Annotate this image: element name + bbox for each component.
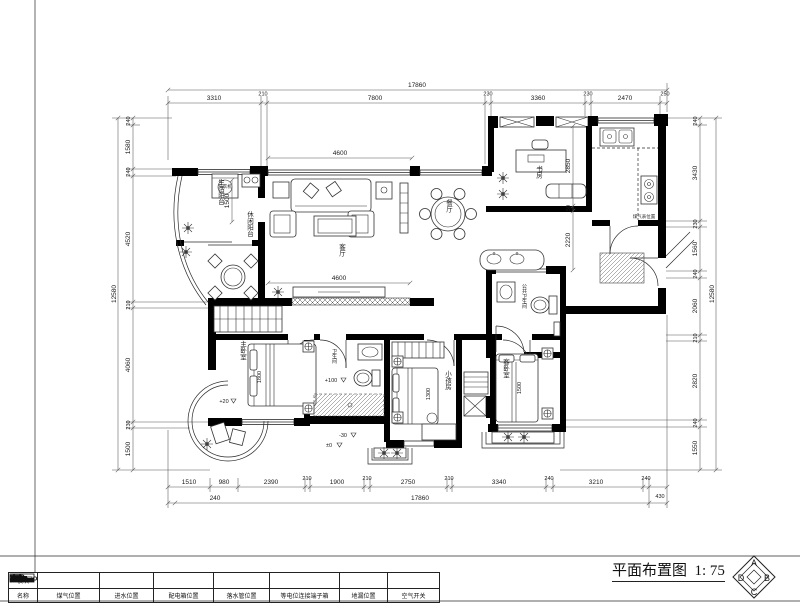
tv-feature-wall <box>292 298 410 305</box>
dim-top-seg: 210 <box>258 92 267 98</box>
wall-segment <box>384 340 390 442</box>
wall-segment <box>560 274 566 354</box>
dim-master-bed: 1800 <box>257 371 263 383</box>
wall-segment <box>546 266 566 274</box>
wall-segment <box>486 352 496 358</box>
divider-screen <box>400 183 408 233</box>
dim-top-seg: 250 <box>660 92 669 98</box>
dim-bot-seg: 2750 <box>401 479 416 486</box>
wall-segment <box>488 116 498 128</box>
dim-guest-bed: 1500 <box>517 382 523 394</box>
bedside-lamp <box>303 403 314 414</box>
label-public-bath: 公共卫生间 <box>521 284 527 310</box>
label-living: 客厅 <box>338 242 346 256</box>
shelf <box>554 322 560 336</box>
level-triangle-icon <box>351 433 356 437</box>
plant-icon <box>272 286 284 298</box>
wall-segment <box>434 440 462 448</box>
dim-right-seg: 2820 <box>692 373 699 388</box>
label-washer: 洗衣机 <box>218 183 232 190</box>
wall-segment <box>410 298 434 306</box>
label-leisure-balcony: 休闲阳台 <box>246 210 254 239</box>
dim-bot-seg: 210 <box>362 476 371 482</box>
wall-segment <box>314 334 320 340</box>
legend-header-name: 名称 <box>9 588 37 603</box>
stove <box>641 176 657 204</box>
dim-top-seg: 2470 <box>618 95 633 102</box>
planter-box <box>492 432 554 443</box>
wall-segment <box>294 418 310 426</box>
wall-segment <box>346 334 424 340</box>
dim-bot-right: 430 <box>655 494 664 500</box>
wall-segment <box>172 168 198 176</box>
dim-child-bed: 1300 <box>426 388 432 400</box>
compass-letter-top: A <box>751 558 757 568</box>
compass-letter-bottom: C <box>751 587 758 597</box>
window-box <box>500 117 534 127</box>
dim-left-seg: 1580 <box>125 139 132 154</box>
distribution-box-icon <box>153 573 213 588</box>
bedside-lamp <box>303 341 314 352</box>
kitchen-door <box>610 226 638 254</box>
dim-left-seg: 4060 <box>125 357 132 372</box>
tv-cabinet <box>293 287 385 297</box>
bedside-lamp <box>392 412 403 423</box>
dim-bot-seg: 240 <box>544 476 553 482</box>
wall-segment <box>410 166 420 176</box>
balcony-table-set <box>208 254 258 300</box>
dim-right-seg: 230 <box>693 219 699 228</box>
equipotential-terminal-icon <box>269 573 339 588</box>
wall-segment <box>386 440 404 448</box>
dim-top-overall: 17860 <box>408 82 426 89</box>
wall-segment <box>488 424 498 432</box>
downpipe-icon <box>213 573 269 588</box>
gas-meter-icon <box>37 573 99 588</box>
dim-left-seg: 4520 <box>125 231 132 246</box>
label-master: 主卧室 <box>239 339 247 360</box>
wall-segment <box>308 416 388 424</box>
wall-segment <box>208 334 288 340</box>
floor-plan-sheet: 17860 3310 210 7800 230 3360 230 2470 25… <box>0 0 800 607</box>
label-child: 小孩房 <box>444 369 452 391</box>
level-triangle-icon <box>231 399 236 403</box>
shower-area <box>314 394 384 416</box>
dim-left-seg: 210 <box>126 300 132 309</box>
dim-bot-seg: 3340 <box>492 479 507 486</box>
wall-segment <box>552 424 566 432</box>
air-switch-icon <box>387 573 439 588</box>
drawing-scale: 1: 75 <box>695 563 725 579</box>
dining-table-set <box>420 189 477 240</box>
dim-top-seg: 7800 <box>368 95 383 102</box>
wall-segment <box>486 274 492 354</box>
legend-item-water-inlet: 进水位置 <box>99 588 153 603</box>
dim-bot-seg: 240 <box>641 476 650 482</box>
wall-segment <box>454 334 502 340</box>
child-desk <box>422 413 456 440</box>
dim-right-seg: 1560 <box>692 241 699 256</box>
dim-bot-overall: 17860 <box>411 495 429 502</box>
dim-left-seg: 230 <box>126 420 132 429</box>
service-shaft <box>464 372 492 418</box>
wall-segment <box>566 306 666 314</box>
dim-bot-seg: 210 <box>444 476 453 482</box>
plant-icon <box>497 188 509 200</box>
wall-segment <box>536 116 554 126</box>
dim-bot-seg: 1510 <box>182 479 197 486</box>
wall-segment <box>592 220 610 226</box>
sink <box>358 344 382 360</box>
dim-bot-seg: 210 <box>302 476 311 482</box>
legend-item-downpipe: 落水管位置 <box>213 588 269 603</box>
wall-segment <box>586 126 592 212</box>
legend-item-distribution-box: 配电箱位置 <box>153 588 213 603</box>
cabinet <box>376 182 392 199</box>
dim-left-seg: 240 <box>126 116 132 125</box>
wall-segment <box>658 126 666 228</box>
wall-segment <box>654 114 668 126</box>
level-hall-zero: ±0 <box>326 443 332 449</box>
dim-top-seg: 3360 <box>531 95 546 102</box>
child-bay-window <box>368 448 412 464</box>
water-inlet-icon <box>99 573 153 588</box>
dim-right-seg: 1550 <box>692 440 699 455</box>
dim-right-seg: 2060 <box>692 298 699 313</box>
wall-segment <box>456 340 462 442</box>
bedside-lamp <box>542 408 553 419</box>
level-hall-minus: -30 <box>339 433 347 439</box>
legend-item-air-switch: 空气开关 <box>387 588 439 603</box>
lounge-chair <box>229 429 245 446</box>
legend-item-equipotential: 等电位连接端子箱 <box>269 588 339 603</box>
wall-segment <box>658 228 666 258</box>
dim-top-seg: 230 <box>483 92 492 98</box>
wall-segment <box>588 116 598 126</box>
dim-living-top: 4600 <box>333 150 348 157</box>
balcony-curved-wall <box>178 176 208 302</box>
legend-item-floor-drain: 地漏位置 <box>339 588 387 603</box>
sofa-set <box>270 179 392 237</box>
level-balcony: +20 <box>219 399 228 405</box>
bedside-lamp <box>392 356 403 367</box>
dim-study-gap: 50 <box>566 205 572 211</box>
dim-left-overall: 12580 <box>111 285 118 303</box>
toilet <box>354 370 380 386</box>
dim-bot-left: 240 <box>210 495 221 502</box>
plant-icon <box>201 438 213 450</box>
toilet <box>531 296 557 314</box>
bedside-lamp <box>542 348 553 359</box>
wall-segment <box>258 222 265 304</box>
plant-icon <box>182 222 194 234</box>
dimension-right: 12580 240 3430 230 1560 240 2060 210 282… <box>560 116 722 472</box>
dim-top-seg: 230 <box>583 92 592 98</box>
dim-bot-seg: 1900 <box>330 479 345 486</box>
level-bath: +100 <box>325 378 337 384</box>
guest-bay-window <box>482 432 564 448</box>
dim-right-seg: 210 <box>693 333 699 342</box>
window-box <box>556 117 588 127</box>
dim-right-seg: 240 <box>693 269 699 278</box>
dim-right-seg: 240 <box>693 116 699 125</box>
dim-bot-seg: 980 <box>219 479 230 486</box>
legend-item-gas: 煤气位置 <box>37 588 99 603</box>
water-heater <box>242 174 260 187</box>
dim-left-seg: 240 <box>126 167 132 176</box>
dim-right-seg: 3430 <box>692 165 699 180</box>
floor-drain-icon <box>339 573 387 588</box>
wash-counter <box>480 250 544 270</box>
compass-letter-left: D <box>738 573 745 583</box>
dim-right-overall: 12580 <box>709 285 716 303</box>
dim-bot-seg: 2390 <box>264 479 279 486</box>
dim-study-depth: 2850 <box>565 158 572 173</box>
drawing-title: 平面布置图 <box>612 563 687 579</box>
dim-top-seg: 3310 <box>207 95 222 102</box>
label-bath: 卫生间 <box>331 349 337 365</box>
dim-dining-depth: 2220 <box>565 232 572 247</box>
legend-table: 模块 名称 煤气位置 进水位置 配电箱位置 落水管位置 等电位连接端子箱 地漏位… <box>8 572 440 603</box>
label-gas-note: 煤气表位置 <box>633 213 656 220</box>
dim-left-seg: 1500 <box>125 441 132 456</box>
dim-balcony-width: 1500 <box>224 193 231 208</box>
wall-segment <box>488 128 494 172</box>
title-block: 平面布置图 1: 75 <box>612 559 725 580</box>
study-bench <box>546 184 586 198</box>
entry-floor-hatch <box>600 253 644 283</box>
master-wardrobe <box>214 306 282 332</box>
window <box>404 441 434 446</box>
orientation-compass-icon: A B C D <box>730 553 778 601</box>
dim-bot-seg: 3210 <box>589 479 604 486</box>
level-triangle-icon <box>341 378 346 382</box>
level-triangle-icon <box>337 443 342 447</box>
wall-segment <box>638 220 664 226</box>
dim-right-seg: 240 <box>693 418 699 427</box>
plant-icon <box>497 172 509 184</box>
dim-living-bottom: 4600 <box>332 275 347 282</box>
kitchen-counter <box>592 128 658 220</box>
compass-letter-right: B <box>764 573 770 583</box>
exterior-steps <box>666 232 694 268</box>
